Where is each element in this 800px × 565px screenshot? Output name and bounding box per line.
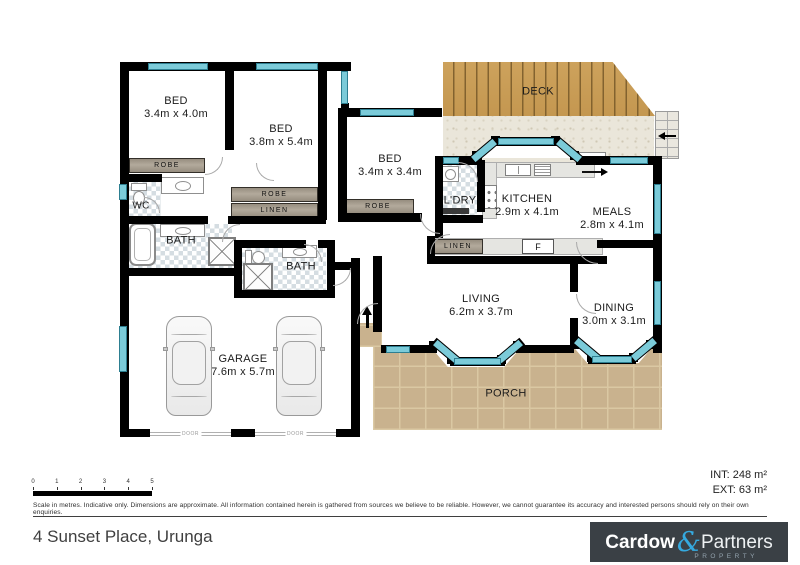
door-arc [333, 268, 351, 286]
floor-areas: INT: 248 m² EXT: 63 m² [710, 468, 767, 497]
wall-segment [338, 213, 422, 222]
wall-segment [234, 240, 306, 248]
shower-icon [243, 263, 273, 291]
footer-divider [33, 516, 767, 517]
external-area: EXT: 63 m² [710, 483, 767, 498]
window-segment [592, 356, 632, 363]
scale-tick [128, 487, 129, 490]
window-segment [119, 326, 127, 372]
door-arc [205, 157, 223, 175]
car-icon [276, 316, 322, 416]
wall-segment [435, 215, 483, 223]
garage-door: DOOR [255, 432, 336, 436]
kitchen-drainer-icon [534, 164, 551, 176]
door-arc [576, 294, 596, 314]
wall-segment [228, 216, 326, 224]
door-arc [256, 163, 274, 181]
door-arc [420, 214, 440, 234]
wall-segment [351, 258, 360, 437]
room-label-laundry: L'DRY [444, 195, 477, 208]
wall-segment [477, 160, 485, 212]
room-label-garage: GARAGE7.6m x 5.7m [211, 353, 275, 379]
disclaimer-text: Scale in metres. Indicative only. Dimens… [33, 502, 773, 516]
room-label-porch: PORCH [485, 388, 526, 401]
scale-tick [81, 487, 82, 490]
scale-tick-label: 1 [55, 479, 58, 485]
floorplan-page: F ROBE ROBE LINEN ROBE LINEN DOOR DOOR B… [0, 0, 800, 565]
car-icon [166, 316, 212, 416]
fridge-icon: F [522, 239, 554, 254]
wall-joint [341, 103, 349, 111]
wall-segment [516, 345, 574, 353]
sliding-door-arrow-line [582, 171, 602, 173]
room-label-bed3: BED3.4m x 3.4m [358, 153, 422, 179]
room-label-bath1: BATH [166, 235, 196, 248]
room-label-bed1: BED3.4m x 4.0m [144, 95, 208, 121]
window-segment [454, 358, 501, 365]
room-label-meals: MEALS2.8m x 4.1m [580, 206, 644, 232]
bathtub-icon [129, 223, 156, 266]
window-segment [610, 157, 648, 164]
wall-segment [570, 258, 578, 292]
window-segment [341, 71, 348, 104]
room-label-deck: DECK [522, 86, 554, 99]
logo-word-partners: Partners [701, 532, 773, 554]
wall-segment [120, 268, 242, 276]
wall-segment [338, 115, 347, 221]
window-segment [148, 63, 208, 70]
wall-segment [336, 429, 360, 437]
scale-tick [33, 487, 34, 490]
room-label-kitchen: KITCHEN2.9m x 4.1m [495, 193, 559, 219]
window-segment [386, 346, 410, 353]
robe-bar-bed1: ROBE [129, 158, 205, 173]
garage-door: DOOR [150, 432, 231, 436]
vanity-icon [161, 177, 204, 194]
logo-word-cardow: Cardow [605, 532, 675, 554]
scale-tick-label: 5 [150, 479, 153, 485]
scale-tick-label: 0 [31, 479, 34, 485]
scale-bar-rule [33, 491, 152, 496]
scale-tick [152, 487, 153, 490]
wall-segment [225, 62, 234, 150]
wall-segment [234, 290, 335, 298]
window-segment [498, 138, 554, 145]
window-segment [654, 184, 661, 234]
logo-tagline: PROPERTY [694, 553, 758, 560]
window-segment [256, 63, 318, 70]
wall-segment [120, 174, 162, 182]
wall-segment [318, 62, 327, 220]
window-segment [119, 184, 127, 200]
robe-bar-bed2: ROBE [231, 187, 318, 202]
wall-segment [120, 429, 150, 437]
laundry-tub-icon [441, 166, 459, 182]
room-label-bed2: BED3.8m x 5.4m [249, 123, 313, 149]
internal-area: INT: 248 m² [710, 468, 767, 483]
wall-segment [427, 256, 607, 264]
robe-bar-bed3: ROBE [342, 199, 414, 214]
property-address: 4 Sunset Place, Urunga [33, 527, 213, 547]
room-label-living: LIVING6.2m x 3.7m [449, 293, 513, 319]
scale-tick [104, 487, 105, 490]
window-segment [443, 157, 459, 164]
door-arc [357, 303, 378, 324]
stairs-icon [655, 111, 679, 159]
wall-segment [231, 429, 255, 437]
window-segment [360, 109, 414, 116]
wall-segment [120, 216, 208, 224]
window-segment [654, 281, 661, 325]
scale-tick [57, 487, 58, 490]
scale-tick-label: 3 [103, 479, 106, 485]
arrow-right-icon [601, 168, 608, 176]
room-label-bath2: BATH [286, 261, 316, 274]
agency-logo: Cardow & Partners PROPERTY [590, 522, 788, 562]
scale-tick-label: 4 [127, 479, 130, 485]
logo-ampersand-icon: & [677, 527, 701, 558]
kitchen-sink-icon [505, 164, 531, 176]
washer-icon [439, 208, 469, 214]
scale-tick-label: 2 [79, 479, 82, 485]
